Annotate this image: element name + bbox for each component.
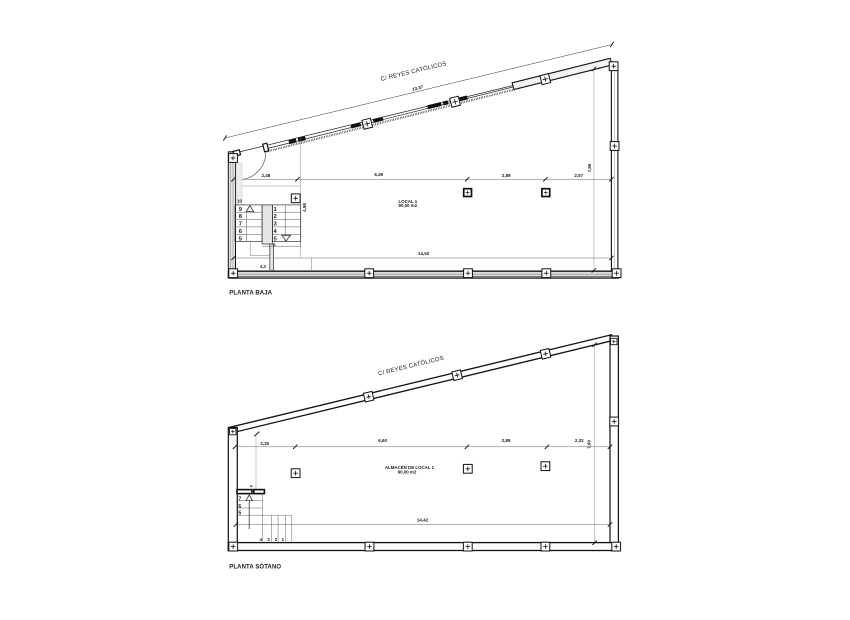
svg-text:14,42: 14,42 [417,518,429,523]
svg-text:90,00 m2: 90,00 m2 [399,203,418,208]
svg-text:6,60: 6,60 [378,438,387,443]
svg-text:2: 2 [273,214,276,220]
svg-text:2,32: 2,32 [575,438,584,443]
svg-text:7,86: 7,86 [587,163,592,172]
svg-text:4,3: 4,3 [260,264,266,269]
svg-text:PLANTA BAJA: PLANTA BAJA [229,291,272,297]
svg-text:2,89: 2,89 [502,173,511,178]
svg-text:PLANTA SÓTANO: PLANTA SÓTANO [229,563,281,571]
svg-text:14,52: 14,52 [418,251,430,256]
svg-text:7: 7 [238,496,241,502]
svg-text:6,49: 6,49 [374,172,383,177]
svg-text:6: 6 [238,504,241,510]
svg-text:5: 5 [238,510,241,516]
svg-text:90,00 m2: 90,00 m2 [398,469,417,474]
svg-text:2,48: 2,48 [262,173,271,178]
svg-text:10: 10 [237,198,242,203]
svg-text:7,60: 7,60 [587,440,592,449]
svg-text:8: 8 [250,485,254,487]
svg-text:2,57: 2,57 [574,173,583,178]
svg-text:2,30: 2,30 [260,441,269,446]
svg-text:4,98: 4,98 [302,203,307,212]
svg-text:2,89: 2,89 [502,438,511,443]
svg-text:7: 7 [239,222,242,228]
